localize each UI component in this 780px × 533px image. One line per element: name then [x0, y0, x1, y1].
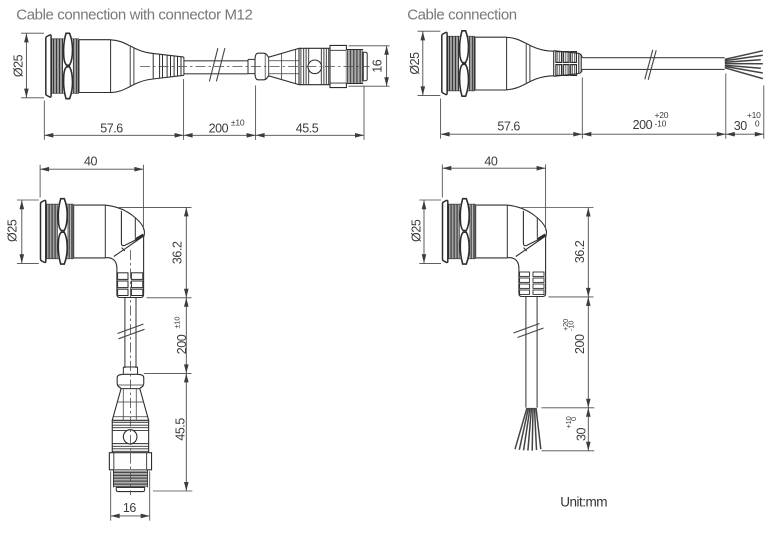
svg-text:36.2: 36.2 [170, 241, 184, 264]
svg-text:-10: -10 [567, 321, 576, 331]
svg-text:200: 200 [633, 118, 653, 132]
svg-text:-10: -10 [655, 118, 667, 128]
svg-text:200: 200 [175, 334, 189, 354]
svg-text:40: 40 [84, 155, 98, 169]
svg-text:45.5: 45.5 [296, 121, 319, 135]
svg-text:0: 0 [569, 417, 578, 421]
svg-text:16: 16 [371, 59, 385, 73]
svg-text:±10: ±10 [231, 118, 245, 128]
svg-text:30: 30 [575, 427, 589, 441]
svg-text:Ø25: Ø25 [12, 54, 26, 77]
svg-text:57.6: 57.6 [100, 121, 123, 135]
svg-text:200: 200 [573, 334, 587, 354]
svg-text:Cable connection: Cable connection [407, 7, 517, 24]
svg-text:Unit:mm: Unit:mm [560, 494, 607, 509]
svg-text:0: 0 [755, 118, 760, 128]
svg-text:±10: ±10 [173, 317, 182, 329]
svg-text:Cable connection with connecto: Cable connection with connector M12 [16, 7, 252, 24]
svg-text:40: 40 [484, 155, 498, 169]
svg-text:16: 16 [123, 501, 137, 515]
svg-text:30: 30 [734, 119, 748, 133]
svg-text:200: 200 [209, 121, 229, 135]
svg-text:Ø25: Ø25 [408, 52, 422, 75]
svg-text:36.2: 36.2 [573, 240, 587, 263]
svg-text:Ø25: Ø25 [5, 219, 19, 242]
svg-text:Ø25: Ø25 [410, 219, 424, 242]
svg-text:57.6: 57.6 [497, 120, 520, 134]
svg-text:45.5: 45.5 [174, 418, 188, 441]
